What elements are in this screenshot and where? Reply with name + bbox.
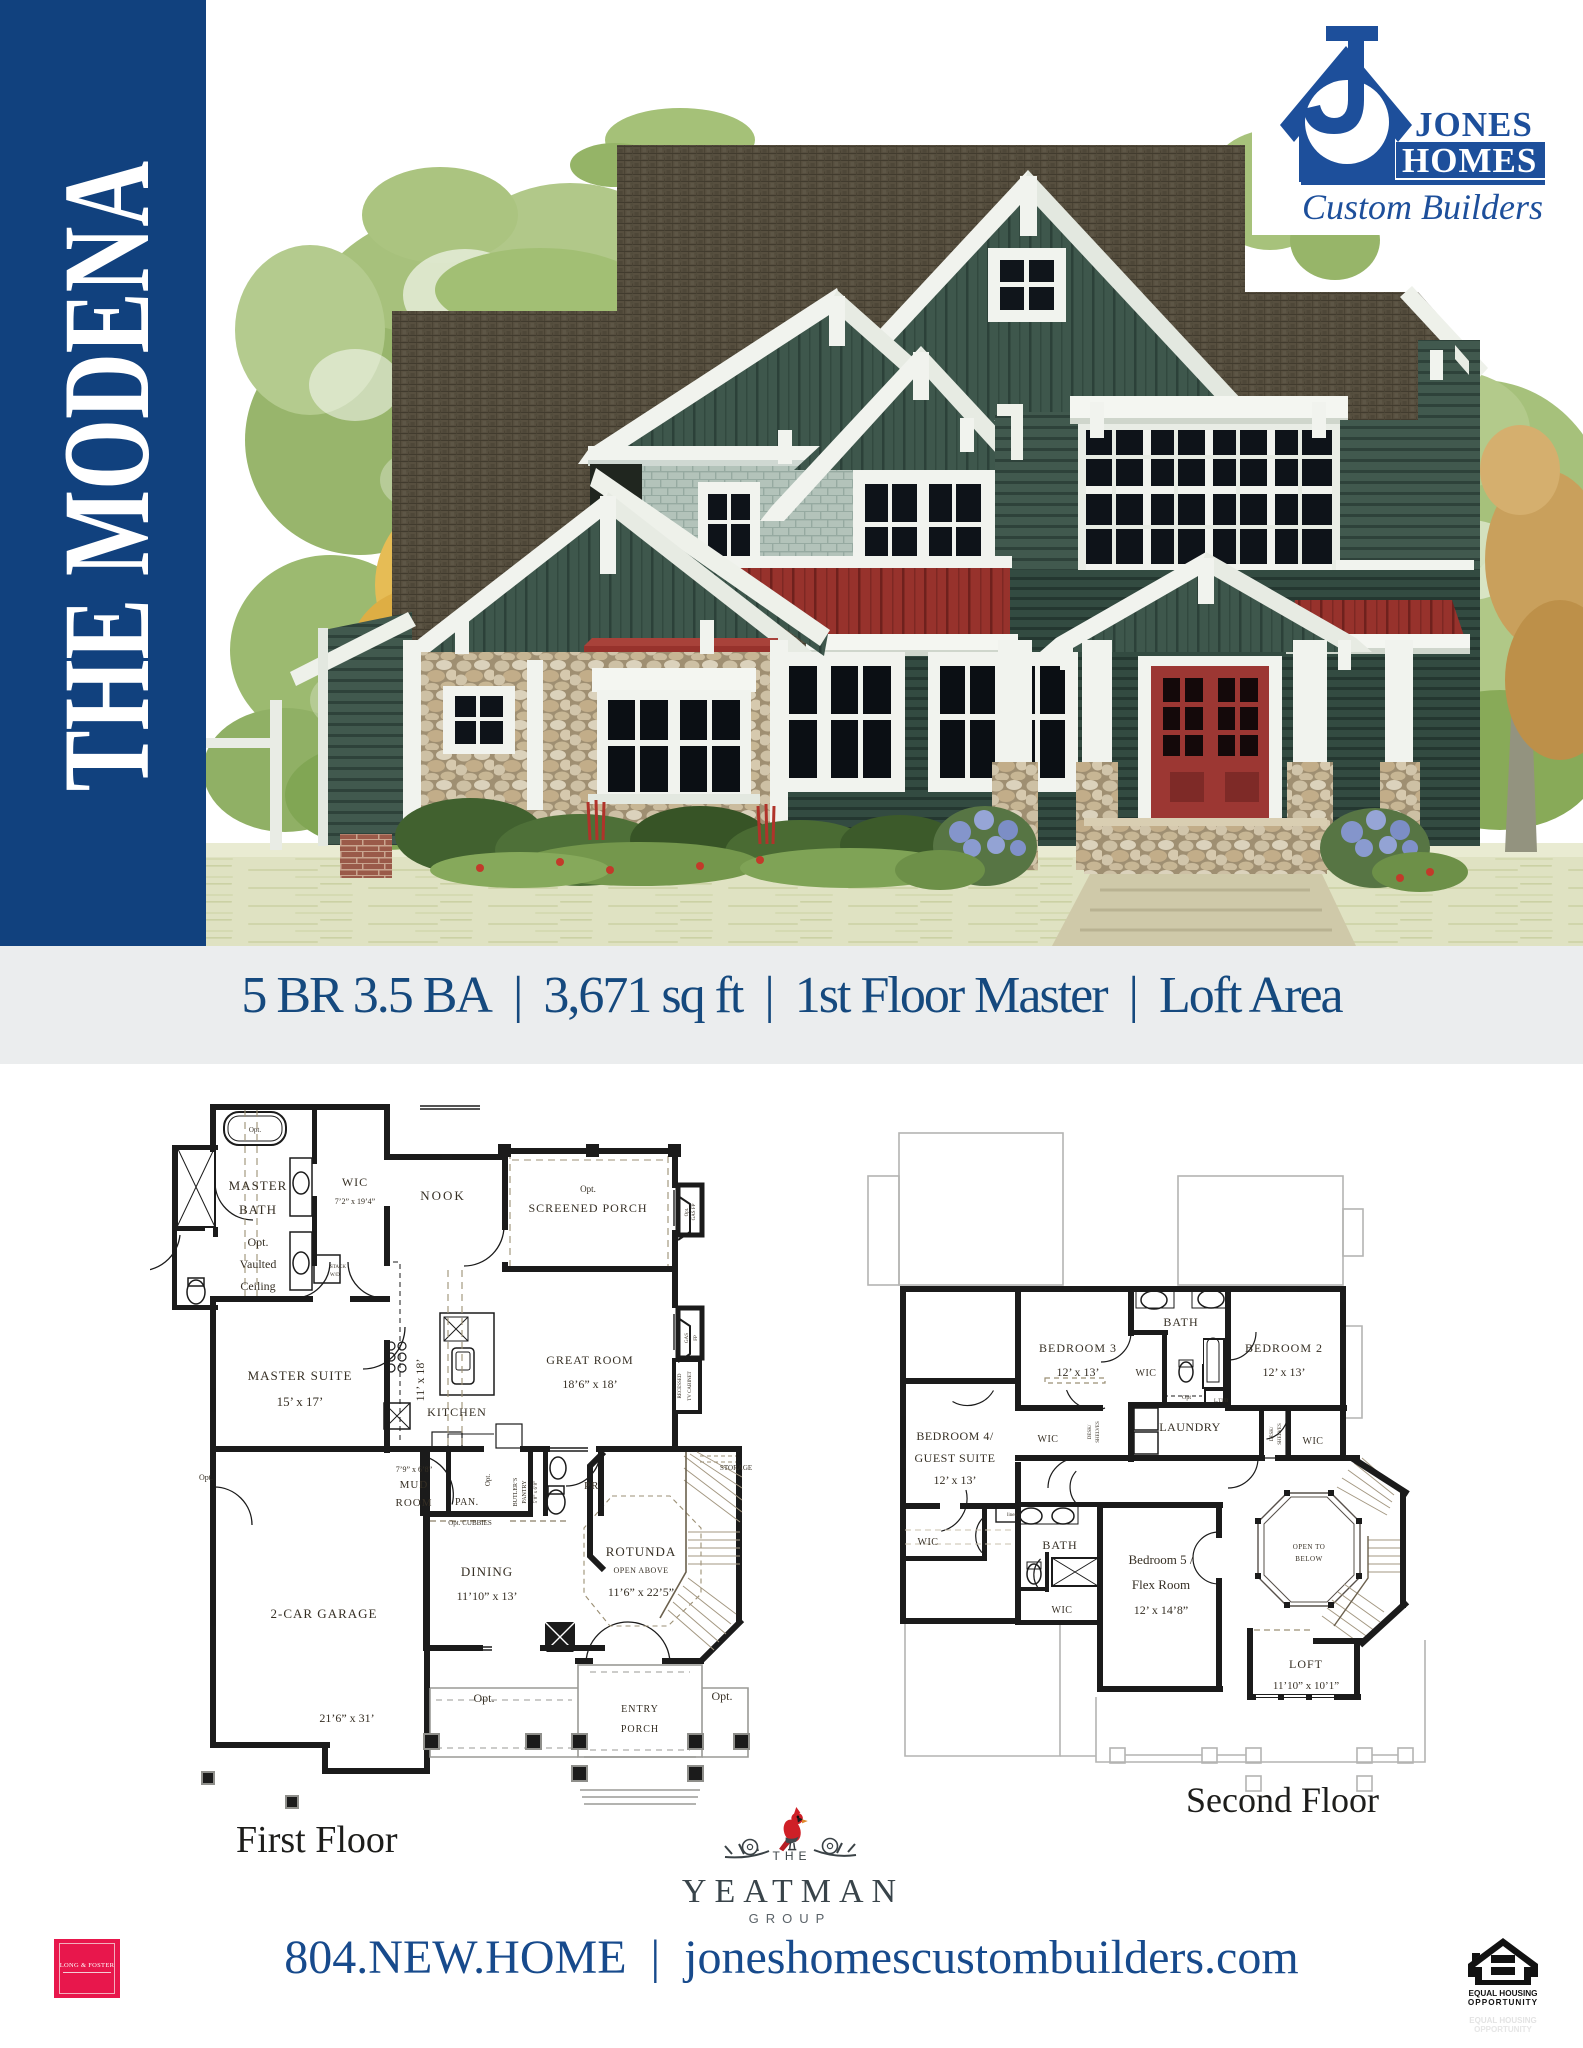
svg-text:GAS: GAS [685, 1333, 690, 1343]
svg-text:BATH: BATH [1163, 1315, 1198, 1329]
svg-text:WIC: WIC [1303, 1436, 1324, 1447]
svg-text:SHELVES: SHELVES [1278, 1423, 1283, 1445]
svg-text:7’9” x 6’8”: 7’9” x 6’8” [396, 1465, 433, 1474]
svg-text:15’ x 17’: 15’ x 17’ [277, 1394, 324, 1409]
svg-text:BEDROOM 3: BEDROOM 3 [1039, 1341, 1117, 1355]
svg-text:PR: PR [584, 1480, 599, 1492]
svg-text:WIC: WIC [342, 1175, 368, 1189]
svg-text:SHELVES: SHELVES [1096, 1421, 1101, 1443]
svg-text:Opt. CUBBIES: Opt. CUBBIES [448, 1519, 492, 1527]
svg-text:GREAT ROOM: GREAT ROOM [546, 1353, 633, 1367]
svg-text:12’ x 13’: 12’ x 13’ [1262, 1365, 1305, 1379]
svg-text:21’6” x 31’: 21’6” x 31’ [319, 1711, 374, 1725]
svg-text:NOOK: NOOK [420, 1188, 466, 1203]
svg-text:MASTER: MASTER [229, 1178, 288, 1193]
svg-text:Bedroom 5 /: Bedroom 5 / [1129, 1552, 1194, 1567]
svg-text:Custom Builders: Custom Builders [1302, 187, 1543, 227]
svg-text:Opt.: Opt. [712, 1689, 733, 1703]
svg-text:MUD: MUD [400, 1479, 429, 1491]
svg-text:FP: FP [694, 1335, 699, 1341]
svg-text:YEATMAN: YEATMAN [682, 1873, 904, 1910]
svg-text:STORAGE: STORAGE [720, 1464, 752, 1472]
svg-text:Opt.: Opt. [484, 1474, 492, 1487]
svg-text:OPEN ABOVE: OPEN ABOVE [613, 1566, 668, 1575]
svg-text:ROTUNDA: ROTUNDA [606, 1544, 677, 1559]
svg-text:PANTRY: PANTRY [522, 1480, 528, 1504]
svg-text:Ceiling: Ceiling [240, 1279, 275, 1293]
svg-text:L.TUB: L.TUB [1214, 1399, 1229, 1404]
svg-text:WIC: WIC [918, 1537, 939, 1548]
svg-text:DESK/: DESK/ [1270, 1426, 1275, 1441]
svg-text:BUTLER’S: BUTLER’S [513, 1478, 519, 1507]
svg-text:LOFT: LOFT [1289, 1657, 1323, 1671]
svg-text:GUEST SUITE: GUEST SUITE [915, 1451, 996, 1465]
svg-text:5’8” x 6’8”: 5’8” x 6’8” [534, 1481, 539, 1504]
svg-text:OPPORTUNITY: OPPORTUNITY [1474, 2025, 1532, 2034]
svg-text:DESK/: DESK/ [1088, 1424, 1093, 1439]
svg-text:KITCHEN: KITCHEN [427, 1405, 487, 1419]
svg-text:W/D: W/D [330, 1273, 340, 1278]
svg-text:SCREENED PORCH: SCREENED PORCH [528, 1201, 647, 1215]
svg-text:linen: linen [1007, 1513, 1017, 1518]
svg-text:Opt.: Opt. [685, 1208, 690, 1217]
svg-text:GROUP: GROUP [749, 1911, 832, 1926]
svg-text:BATH: BATH [1042, 1538, 1077, 1552]
svg-text:12’ x 13’: 12’ x 13’ [933, 1473, 976, 1487]
svg-text:7’2” x 19’4”: 7’2” x 19’4” [335, 1197, 376, 1206]
svg-text:11’10” x 13’: 11’10” x 13’ [457, 1589, 518, 1603]
svg-text:THE: THE [773, 1849, 812, 1863]
svg-text:Opt.: Opt. [249, 1126, 262, 1134]
svg-text:OPPORTUNITY: OPPORTUNITY [1468, 1998, 1538, 2007]
svg-text:Opt.: Opt. [199, 1473, 213, 1482]
svg-text:BEDROOM 2: BEDROOM 2 [1245, 1341, 1323, 1355]
svg-text:Opt.: Opt. [248, 1235, 269, 1249]
svg-text:Opt: Opt [1182, 1395, 1191, 1401]
svg-text:2-CAR GARAGE: 2-CAR GARAGE [271, 1606, 378, 1621]
svg-text:Opt.: Opt. [474, 1691, 495, 1705]
svg-text:11’ x 18’: 11’ x 18’ [413, 1359, 427, 1402]
svg-text:LAUNDRY: LAUNDRY [1159, 1420, 1221, 1434]
svg-text:GAS FP: GAS FP [692, 1203, 697, 1220]
svg-text:MASTER SUITE: MASTER SUITE [248, 1368, 353, 1383]
svg-text:11’6” x 22’5”: 11’6” x 22’5” [608, 1585, 674, 1599]
svg-text:RECESSED: RECESSED [678, 1373, 683, 1398]
svg-text:WIC: WIC [1038, 1434, 1059, 1445]
svg-text:12’ x 13’: 12’ x 13’ [1056, 1365, 1099, 1379]
svg-text:12’ x 14’8”: 12’ x 14’8” [1134, 1603, 1188, 1617]
svg-text:TV CABINET: TV CABINET [688, 1371, 693, 1401]
svg-text:HOMES: HOMES [1402, 141, 1537, 180]
svg-text:11’10” x 10’1”: 11’10” x 10’1” [1273, 1680, 1339, 1692]
svg-text:PORCH: PORCH [621, 1724, 659, 1735]
svg-text:BATH: BATH [239, 1202, 277, 1217]
svg-text:EQUAL HOUSING: EQUAL HOUSING [1469, 1989, 1538, 1998]
svg-text:BELOW: BELOW [1295, 1555, 1322, 1563]
svg-text:BEDROOM 4/: BEDROOM 4/ [916, 1429, 994, 1443]
svg-text:ENTRY: ENTRY [621, 1704, 659, 1715]
svg-text:Opt.: Opt. [580, 1184, 596, 1194]
svg-text:STACK: STACK [330, 1265, 346, 1270]
svg-text:Flex Room: Flex Room [1132, 1577, 1190, 1592]
svg-text:Vaulted: Vaulted [240, 1257, 277, 1271]
svg-text:OPEN TO: OPEN TO [1293, 1543, 1326, 1551]
svg-text:PAN.: PAN. [455, 1497, 479, 1508]
svg-text:18’6” x 18’: 18’6” x 18’ [562, 1377, 617, 1391]
svg-text:WIC: WIC [1136, 1368, 1157, 1379]
svg-text:JONES: JONES [1415, 105, 1533, 144]
svg-text:WIC: WIC [1052, 1605, 1073, 1616]
svg-text:EQUAL HOUSING: EQUAL HOUSING [1469, 2016, 1536, 2025]
svg-text:DINING: DINING [461, 1564, 513, 1579]
svg-text:ROOM: ROOM [395, 1497, 432, 1509]
